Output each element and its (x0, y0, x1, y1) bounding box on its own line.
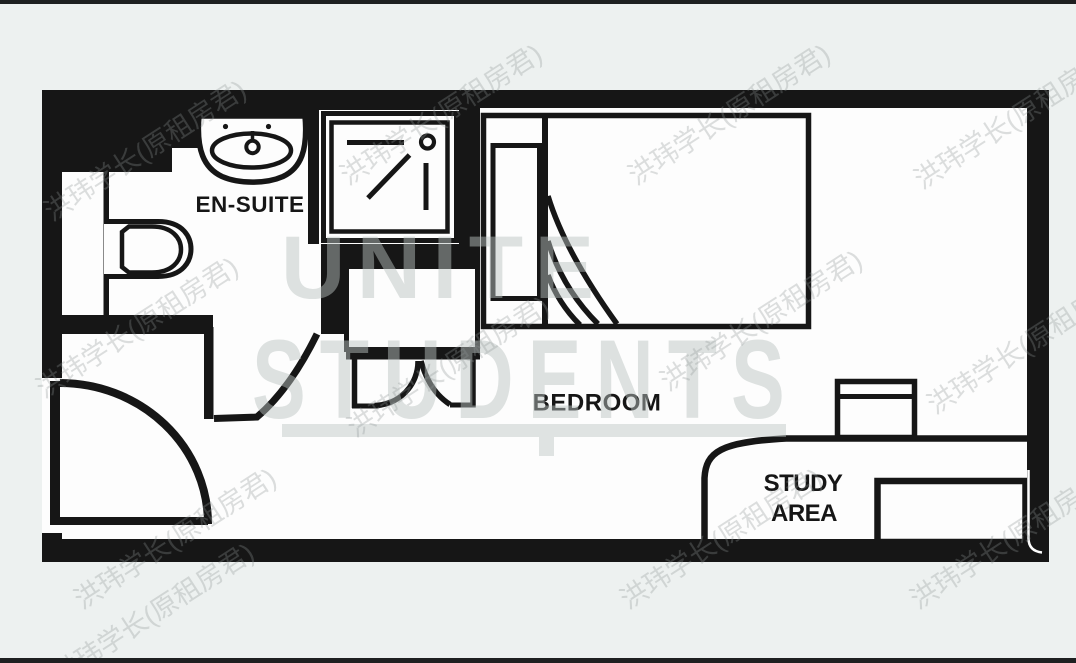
svg-text:UNITE: UNITE (281, 217, 606, 317)
svg-text:EN-SUITE: EN-SUITE (195, 192, 304, 217)
